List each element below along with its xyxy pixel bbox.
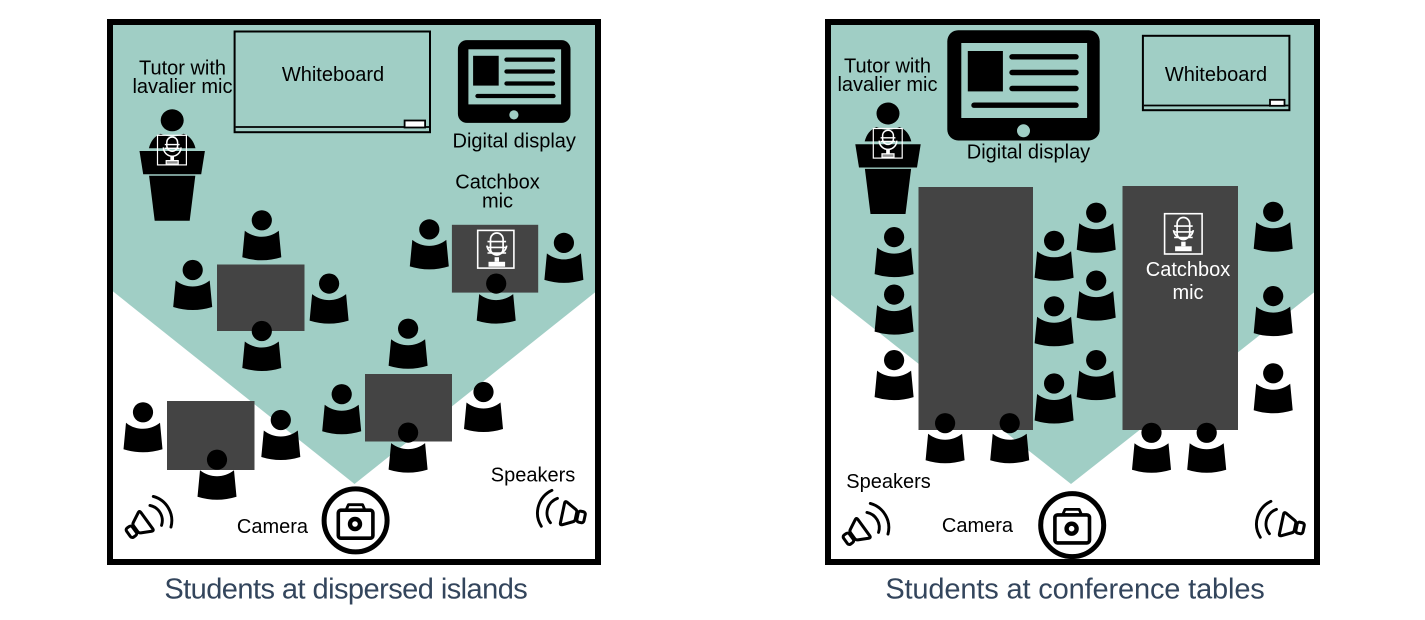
- svg-text:Digital display: Digital display: [967, 142, 1090, 164]
- svg-text:mic: mic: [482, 191, 513, 213]
- svg-text:Students at conference tables: Students at conference tables: [885, 574, 1264, 606]
- svg-text:mic: mic: [1172, 282, 1203, 304]
- svg-text:Students at dispersed islands: Students at dispersed islands: [164, 574, 527, 606]
- svg-text:Catchbox: Catchbox: [1146, 259, 1231, 281]
- svg-text:Camera: Camera: [237, 516, 309, 538]
- svg-text:lavalier mic: lavalier mic: [837, 74, 937, 96]
- svg-text:Speakers: Speakers: [491, 465, 576, 487]
- svg-text:Whiteboard: Whiteboard: [282, 64, 384, 86]
- svg-text:lavalier mic: lavalier mic: [132, 76, 232, 98]
- svg-text:Speakers: Speakers: [846, 471, 931, 493]
- svg-text:Camera: Camera: [942, 515, 1014, 537]
- svg-text:Digital display: Digital display: [453, 131, 576, 153]
- svg-text:Whiteboard: Whiteboard: [1165, 64, 1267, 86]
